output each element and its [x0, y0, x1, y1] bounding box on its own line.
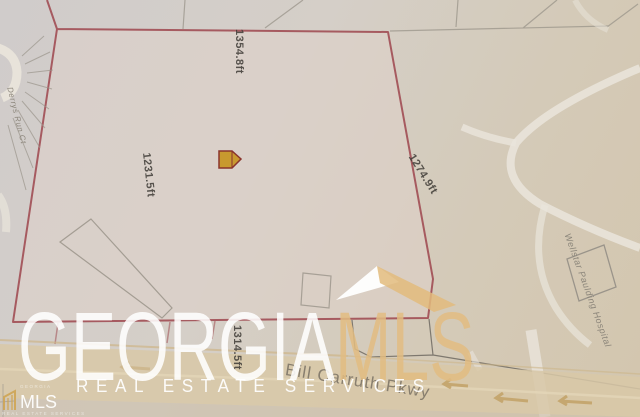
lot-lines-top: [183, 0, 638, 31]
hospital-drives: [462, 0, 640, 417]
corner-building-icon: [2, 389, 18, 411]
corner-mls-logo: GEORGIA MLS REAL ESTATE SERVICES: [2, 384, 122, 417]
cul-de-sac-road: [0, 48, 17, 232]
corner-logo-mls-text: MLS: [20, 393, 57, 411]
subject-parcel-fill: [13, 29, 433, 322]
measurement-top: 1354.8ft: [233, 29, 245, 74]
watermark-tagline: REAL ESTATE SERVICES: [76, 376, 432, 397]
corner-logo-bottom-text: REAL ESTATE SERVICES: [2, 411, 122, 416]
plat-map-screenshot: { "theme": { "paper": "#d3cec9", "bounda…: [0, 0, 640, 417]
